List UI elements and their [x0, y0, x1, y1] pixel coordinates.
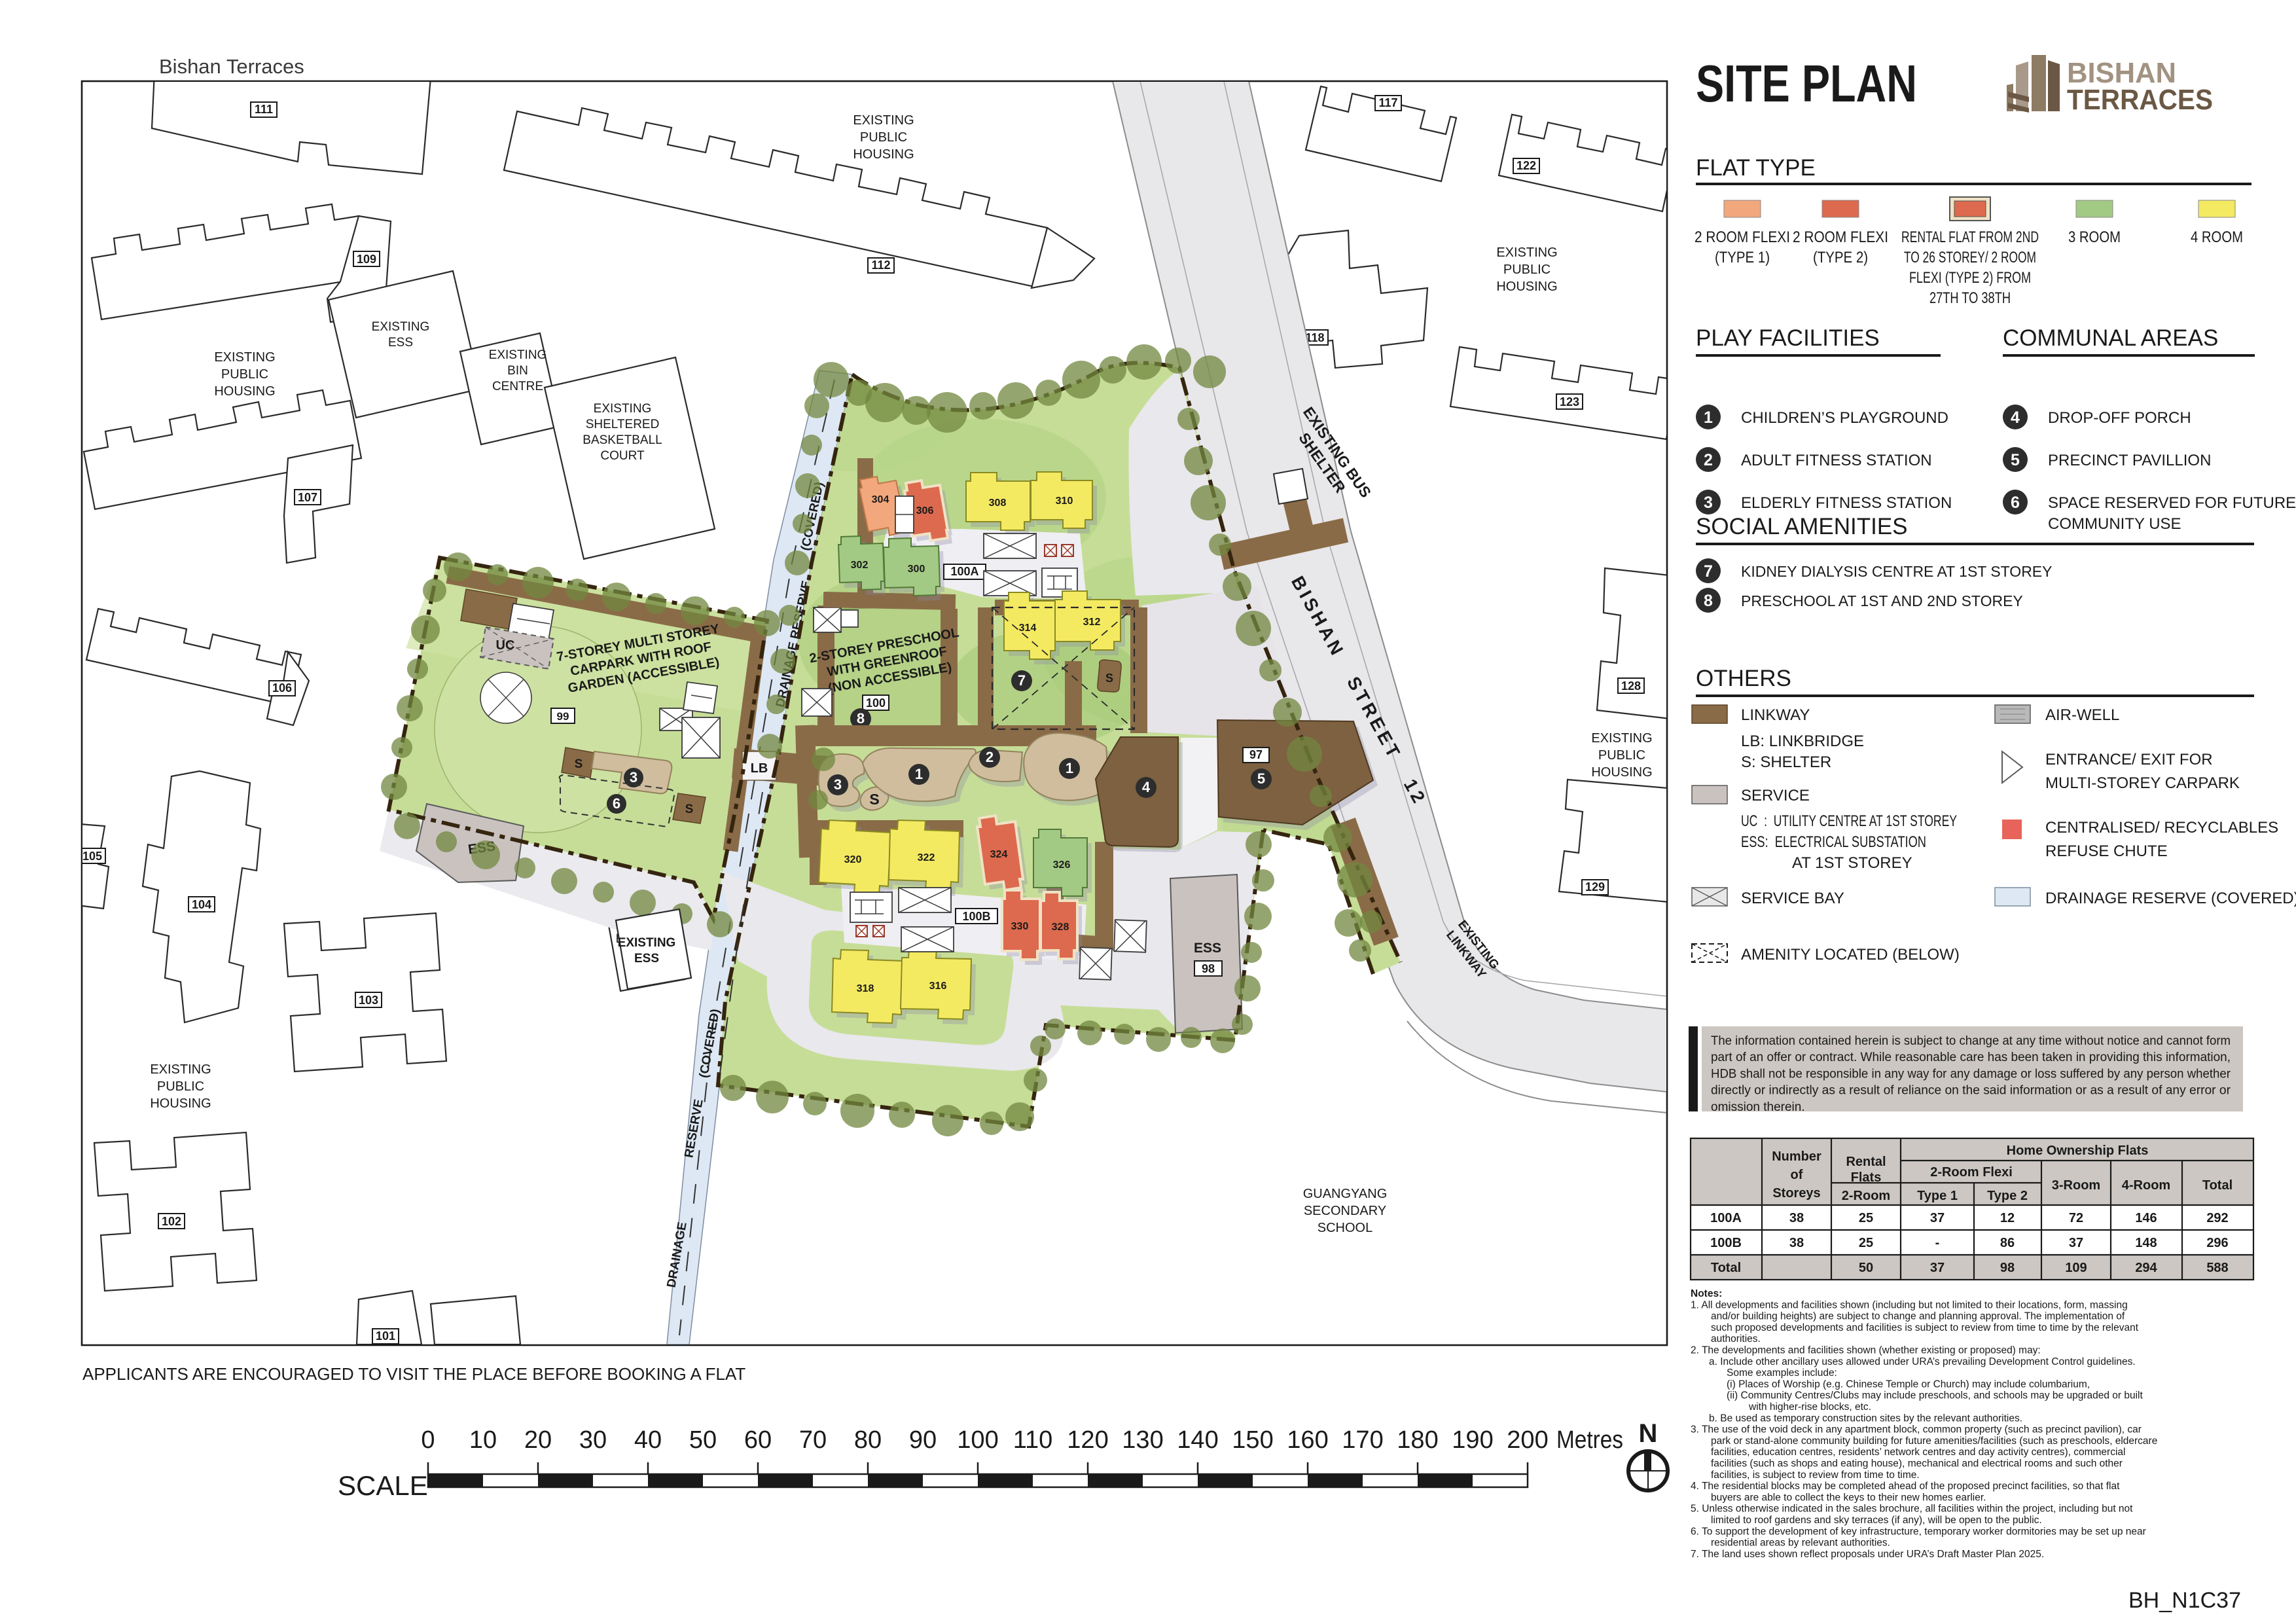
svg-text:123: 123 [1560, 395, 1579, 408]
svg-text:103: 103 [359, 994, 378, 1007]
svg-text:010203040506070809010011012013: 0102030405060708090100110120130140150160… [421, 1426, 1548, 1454]
svg-text:1. All developments and facil: 1. All developments and facilities shown… [1691, 1299, 2128, 1310]
svg-text:AMENITY LOCATED (BELOW): AMENITY LOCATED (BELOW) [1741, 946, 1960, 964]
svg-text:37: 37 [2069, 1236, 2083, 1250]
svg-text:BH_N1C37: BH_N1C37 [2128, 1588, 2241, 1613]
svg-text:b. Be used as temporary constr: b. Be used as temporary construction sit… [1709, 1413, 2022, 1424]
svg-text:111: 111 [255, 103, 273, 116]
svg-text:SITE PLAN: SITE PLAN [1696, 54, 1917, 113]
svg-text:LB: LINKBRIDGE: LB: LINKBRIDGE [1741, 732, 1864, 750]
svg-text:6: 6 [613, 795, 620, 812]
svg-text:Some examples include:: Some examples include: [1727, 1367, 1837, 1379]
svg-text:PLAY FACILITIES: PLAY FACILITIES [1696, 325, 1880, 351]
svg-text:2-Room Flexi: 2-Room Flexi [1930, 1165, 2013, 1180]
svg-text:304: 304 [872, 494, 889, 505]
svg-text:Flats: Flats [1851, 1170, 1882, 1185]
svg-text:3: 3 [1704, 494, 1713, 512]
svg-text:109: 109 [2065, 1261, 2087, 1275]
svg-text:38: 38 [1789, 1211, 1804, 1225]
svg-text:Total: Total [2202, 1178, 2233, 1193]
svg-text:UC: UC [496, 638, 515, 653]
svg-text:Notes:: Notes: [1691, 1288, 1722, 1299]
svg-text:2-Room: 2-Room [1842, 1189, 1890, 1203]
svg-text:LINKWAY: LINKWAY [1741, 706, 1810, 724]
svg-text:99: 99 [557, 710, 569, 723]
svg-text:129: 129 [1585, 880, 1605, 893]
svg-text:300: 300 [908, 564, 925, 575]
svg-text:PRESCHOOL AT 1ST AND 2ND STOR: PRESCHOOL AT 1ST AND 2ND STOREY [1741, 592, 2023, 609]
svg-text:S: S [1105, 672, 1113, 685]
svg-text:8: 8 [857, 710, 865, 727]
svg-text:2: 2 [1704, 451, 1713, 469]
svg-text:Metres: Metres [1556, 1426, 1623, 1454]
svg-text:(ii) Community Centres/Clubs m: (ii) Community Centres/Clubs may include… [1727, 1390, 2143, 1401]
svg-text:4-Room: 4-Room [2122, 1178, 2170, 1193]
svg-text:72: 72 [2069, 1211, 2083, 1225]
svg-text:322: 322 [918, 852, 935, 863]
svg-text:PRECINCT PAVILLION: PRECINCT PAVILLION [2048, 452, 2211, 469]
svg-text:98: 98 [2000, 1261, 2015, 1275]
svg-text:5. Unless otherwise indicated: 5. Unless otherwise indicated in the sal… [1691, 1504, 2133, 1515]
svg-text:122: 122 [1516, 159, 1536, 172]
svg-text:SERVICE: SERVICE [1741, 787, 1810, 804]
svg-text:(i) Places of Worship (e.g. Ch: (i) Places of Worship (e.g. Chinese Temp… [1727, 1379, 2090, 1390]
svg-text:330: 330 [1011, 921, 1029, 932]
svg-text:292: 292 [2206, 1211, 2228, 1225]
svg-text:3-Room: 3-Room [2052, 1178, 2100, 1193]
svg-text:5: 5 [2011, 451, 2020, 469]
svg-text:320: 320 [844, 854, 862, 865]
svg-text:buyers are able to collect the: buyers are able to collect the keys to t… [1711, 1492, 1986, 1503]
svg-text:12: 12 [2000, 1211, 2015, 1225]
svg-text:EXISTINGPUBLICHOUSING: EXISTINGPUBLICHOUSING [1496, 245, 1557, 294]
svg-text:FLAT TYPE: FLAT TYPE [1696, 155, 1816, 181]
svg-text:OTHERS: OTHERS [1696, 666, 1791, 691]
svg-text:ESS: ELECTRICAL SUBSTATION: ESS: ELECTRICAL SUBSTATION [1741, 833, 1926, 851]
svg-text:97: 97 [1249, 748, 1263, 761]
svg-text:316: 316 [929, 981, 947, 992]
svg-text:DRAINAGE RESERVE (COVERED): DRAINAGE RESERVE (COVERED) [2045, 890, 2296, 907]
svg-text:326: 326 [1053, 859, 1071, 871]
svg-text:6: 6 [2011, 494, 2020, 512]
svg-text:4. The residential blocks may: 4. The residential blocks may be complet… [1691, 1481, 2120, 1492]
svg-text:COMMUNAL AREAS: COMMUNAL AREAS [2003, 325, 2218, 351]
svg-text:SERVICE BAY: SERVICE BAY [1741, 890, 1844, 907]
svg-text:318: 318 [857, 983, 874, 994]
svg-text:SCALE: SCALE [338, 1470, 428, 1501]
svg-text:588: 588 [2206, 1261, 2228, 1275]
svg-text:S: SHELTER: S: SHELTER [1741, 753, 1831, 771]
svg-text:102: 102 [162, 1215, 181, 1228]
svg-text:8: 8 [1704, 592, 1713, 610]
svg-text:100A: 100A [1710, 1211, 1742, 1225]
svg-text:4 ROOM: 4 ROOM [2191, 228, 2243, 246]
svg-text:37: 37 [1930, 1261, 1945, 1275]
svg-text:324: 324 [990, 849, 1008, 860]
svg-text:306: 306 [916, 505, 934, 516]
svg-text:328: 328 [1052, 922, 1069, 933]
svg-text:302: 302 [851, 560, 869, 571]
svg-text:109: 109 [357, 253, 376, 266]
svg-text:TERRACES: TERRACES [2067, 84, 2213, 116]
svg-text:100B: 100B [962, 910, 990, 923]
svg-text:facilities, is subject to revi: facilities, is subject to review from ti… [1711, 1470, 1920, 1481]
svg-text:ESS: ESS [1194, 941, 1221, 956]
svg-text:3: 3 [630, 769, 637, 785]
svg-text:100: 100 [866, 696, 886, 710]
svg-text:UC : UTILITY CENTRE AT 1ST S: UC : UTILITY CENTRE AT 1ST STOREY [1741, 812, 1957, 830]
svg-text:50: 50 [1859, 1261, 1873, 1275]
svg-text:CHILDREN’S PLAYGROUND: CHILDREN’S PLAYGROUND [1741, 409, 1948, 427]
svg-text:7: 7 [1018, 672, 1026, 689]
svg-text:4: 4 [1142, 779, 1151, 795]
svg-text:2: 2 [986, 749, 994, 765]
svg-text:S: S [575, 757, 583, 771]
svg-text:1: 1 [915, 766, 923, 782]
svg-text:296: 296 [2206, 1236, 2228, 1250]
svg-text:3 ROOM: 3 ROOM [2068, 228, 2121, 246]
svg-text:Storeys: Storeys [1772, 1186, 1820, 1200]
svg-text:4: 4 [2011, 408, 2020, 427]
svg-text:Type 2: Type 2 [1987, 1189, 2028, 1203]
svg-text:Number: Number [1772, 1149, 1821, 1164]
svg-text:SOCIAL AMENITIES: SOCIAL AMENITIES [1696, 514, 1908, 539]
svg-text:100A: 100A [950, 565, 978, 578]
svg-text:Rental: Rental [1846, 1155, 1886, 1169]
svg-text:294: 294 [2135, 1261, 2157, 1275]
svg-text:KIDNEY DIALYSIS CENTRE AT 1ST: KIDNEY DIALYSIS CENTRE AT 1ST STOREY [1741, 563, 2053, 580]
svg-text:EXISTINGPUBLICHOUSING: EXISTINGPUBLICHOUSING [853, 113, 914, 162]
svg-text:7: 7 [1704, 562, 1713, 581]
svg-text:EXISTINGPUBLICHOUSING: EXISTINGPUBLICHOUSING [214, 350, 275, 399]
svg-text:6. To support the development: 6. To support the development of key inf… [1691, 1526, 2146, 1537]
svg-text:3. The use of the void deck i: 3. The use of the void deck in any apart… [1691, 1424, 2142, 1435]
svg-text:5: 5 [1257, 770, 1265, 787]
svg-text:314: 314 [1019, 623, 1037, 634]
svg-text:1: 1 [1066, 760, 1073, 776]
svg-text:2. The developments and facil: 2. The developments and facilities shown… [1691, 1345, 2041, 1356]
svg-text:112: 112 [871, 259, 890, 272]
svg-text:106: 106 [272, 681, 292, 695]
svg-text:of: of [1791, 1168, 1803, 1182]
svg-text:a. Include other ancillary use: a. Include other ancillary uses allowed … [1709, 1356, 2136, 1367]
svg-text:park or stand-alone community: park or stand-alone community building f… [1711, 1435, 2157, 1447]
svg-text:with higher-rise blocks, etc.: with higher-rise blocks, etc. [1748, 1401, 1871, 1413]
svg-text:S: S [869, 791, 879, 808]
svg-text:residential areas by relevant: residential areas by relevant authoritie… [1711, 1538, 1890, 1549]
svg-text:25: 25 [1859, 1211, 1873, 1225]
svg-text:LB: LB [751, 761, 768, 776]
svg-text:308: 308 [989, 497, 1007, 509]
svg-text:ADULT FITNESS STATION: ADULT FITNESS STATION [1741, 452, 1932, 469]
svg-text:ELDERLY FITNESS STATION: ELDERLY FITNESS STATION [1741, 494, 1952, 512]
svg-text:authorities.: authorities. [1711, 1333, 1761, 1344]
svg-text:105: 105 [82, 850, 102, 863]
svg-text:3: 3 [834, 776, 842, 793]
svg-text:N: N [1639, 1419, 1658, 1448]
svg-text:Total: Total [1711, 1261, 1741, 1275]
svg-text:Bishan Terraces: Bishan Terraces [159, 55, 304, 78]
svg-text:107: 107 [298, 491, 317, 504]
svg-text:146: 146 [2135, 1211, 2157, 1225]
svg-text:S: S [685, 803, 694, 816]
svg-text:148: 148 [2135, 1236, 2157, 1250]
svg-text:APPLICANTS ARE ENCOURAGED TO V: APPLICANTS ARE ENCOURAGED TO VISIT THE P… [82, 1364, 745, 1384]
svg-text:1: 1 [1704, 408, 1713, 427]
svg-text:7. The land uses shown reflec: 7. The land uses shown reflect proposals… [1691, 1549, 2044, 1560]
svg-text:facilities, education centres,: facilities, education centres, residents… [1711, 1447, 2125, 1458]
svg-text:limited to roof gardens and sk: limited to roof gardens and sky terraces… [1711, 1515, 2042, 1526]
svg-text:AT 1ST STOREY: AT 1ST STOREY [1792, 854, 1912, 872]
svg-text:98: 98 [1202, 962, 1215, 975]
svg-text:EXISTINGPUBLICHOUSING: EXISTINGPUBLICHOUSING [1591, 731, 1652, 780]
svg-text:38: 38 [1789, 1236, 1804, 1250]
svg-text:EXISTINGPUBLICHOUSING: EXISTINGPUBLICHOUSING [150, 1062, 211, 1111]
svg-text:104: 104 [192, 898, 211, 911]
svg-text:such proposed developments and: such proposed developments and facilitie… [1711, 1322, 2139, 1333]
svg-text:and/or building heights) are s: and/or building heights) are subject to … [1711, 1311, 2125, 1322]
svg-text:117: 117 [1378, 96, 1397, 109]
svg-text:101: 101 [376, 1329, 395, 1343]
svg-text:25: 25 [1859, 1236, 1873, 1250]
svg-text:37: 37 [1930, 1211, 1945, 1225]
svg-text:-: - [1935, 1236, 1940, 1250]
svg-text:Type 1: Type 1 [1917, 1189, 1958, 1203]
svg-text:100B: 100B [1710, 1236, 1742, 1250]
svg-text:86: 86 [2000, 1236, 2015, 1250]
svg-text:Home Ownership Flats: Home Ownership Flats [2007, 1144, 2149, 1158]
svg-text:310: 310 [1056, 496, 1073, 507]
svg-text:AIR-WELL: AIR-WELL [2045, 706, 2119, 724]
svg-text:312: 312 [1083, 617, 1101, 628]
svg-text:128: 128 [1621, 679, 1641, 693]
svg-text:facilities (such as shops and: facilities (such as shops and eating hou… [1711, 1458, 2123, 1470]
svg-text:DROP-OFF PORCH: DROP-OFF PORCH [2048, 409, 2191, 427]
